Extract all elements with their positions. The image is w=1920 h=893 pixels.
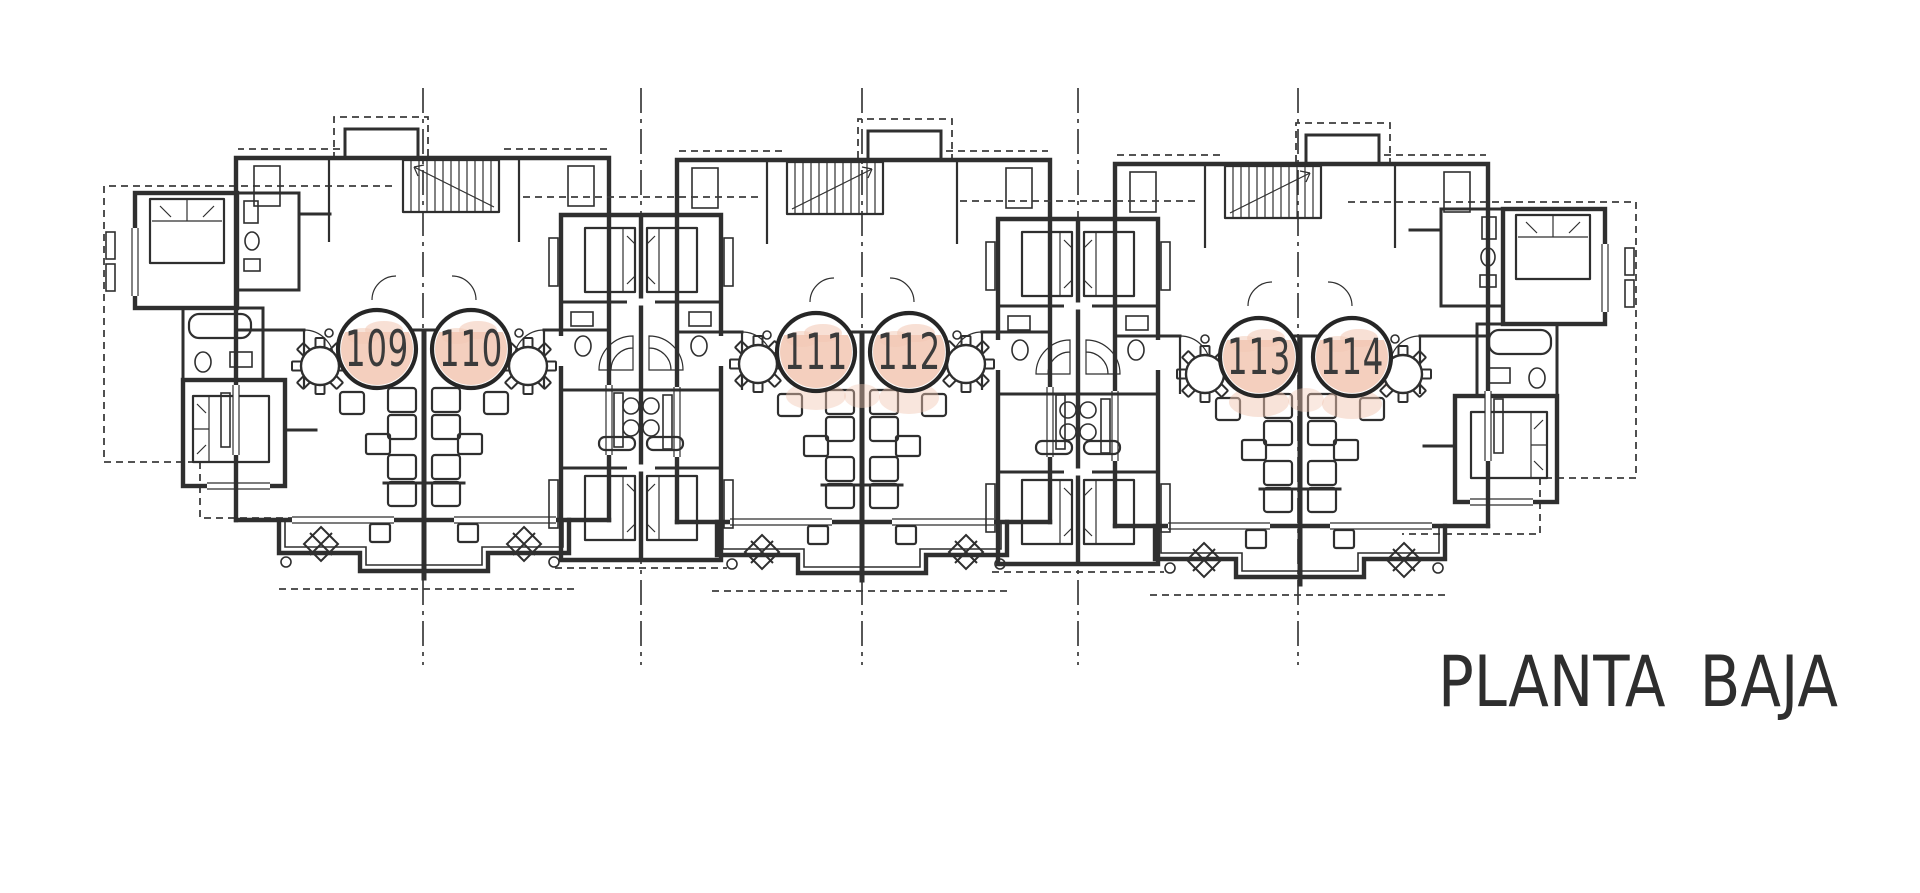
- scanned-floor-plan-page: 109110111112113114 PLANTA BAJA: [0, 0, 1920, 893]
- pink-highlight-smudge: [844, 384, 880, 408]
- unit-marker-112: 112: [870, 313, 948, 391]
- plan-title: PLANTA BAJA: [1438, 641, 1838, 723]
- unit-number-label: 110: [439, 320, 503, 378]
- unit-number-label: 113: [1227, 328, 1291, 386]
- unit-marker-114: 114: [1313, 318, 1391, 396]
- terrace-table-icon: [745, 535, 779, 569]
- unit-number-label: 111: [784, 323, 848, 381]
- unit-marker-109: 109: [338, 310, 416, 388]
- link-section-right: [960, 201, 1196, 572]
- pink-highlight-smudge: [1288, 388, 1324, 412]
- terrace-table-icon: [949, 535, 983, 569]
- unit-marker-111: 111: [777, 313, 855, 391]
- unit-number-label: 109: [345, 320, 409, 378]
- floor-plan-drawing: 109110111112113114 PLANTA BAJA: [0, 0, 1920, 893]
- terrace-table-icon: [304, 527, 338, 561]
- unit-marker-110: 110: [432, 310, 510, 388]
- terrace-table-icon: [507, 527, 541, 561]
- unit-number-label: 112: [877, 323, 941, 381]
- link-section-left: [523, 197, 759, 568]
- unit-number-label: 114: [1320, 328, 1384, 386]
- unit-marker-113: 113: [1220, 318, 1298, 396]
